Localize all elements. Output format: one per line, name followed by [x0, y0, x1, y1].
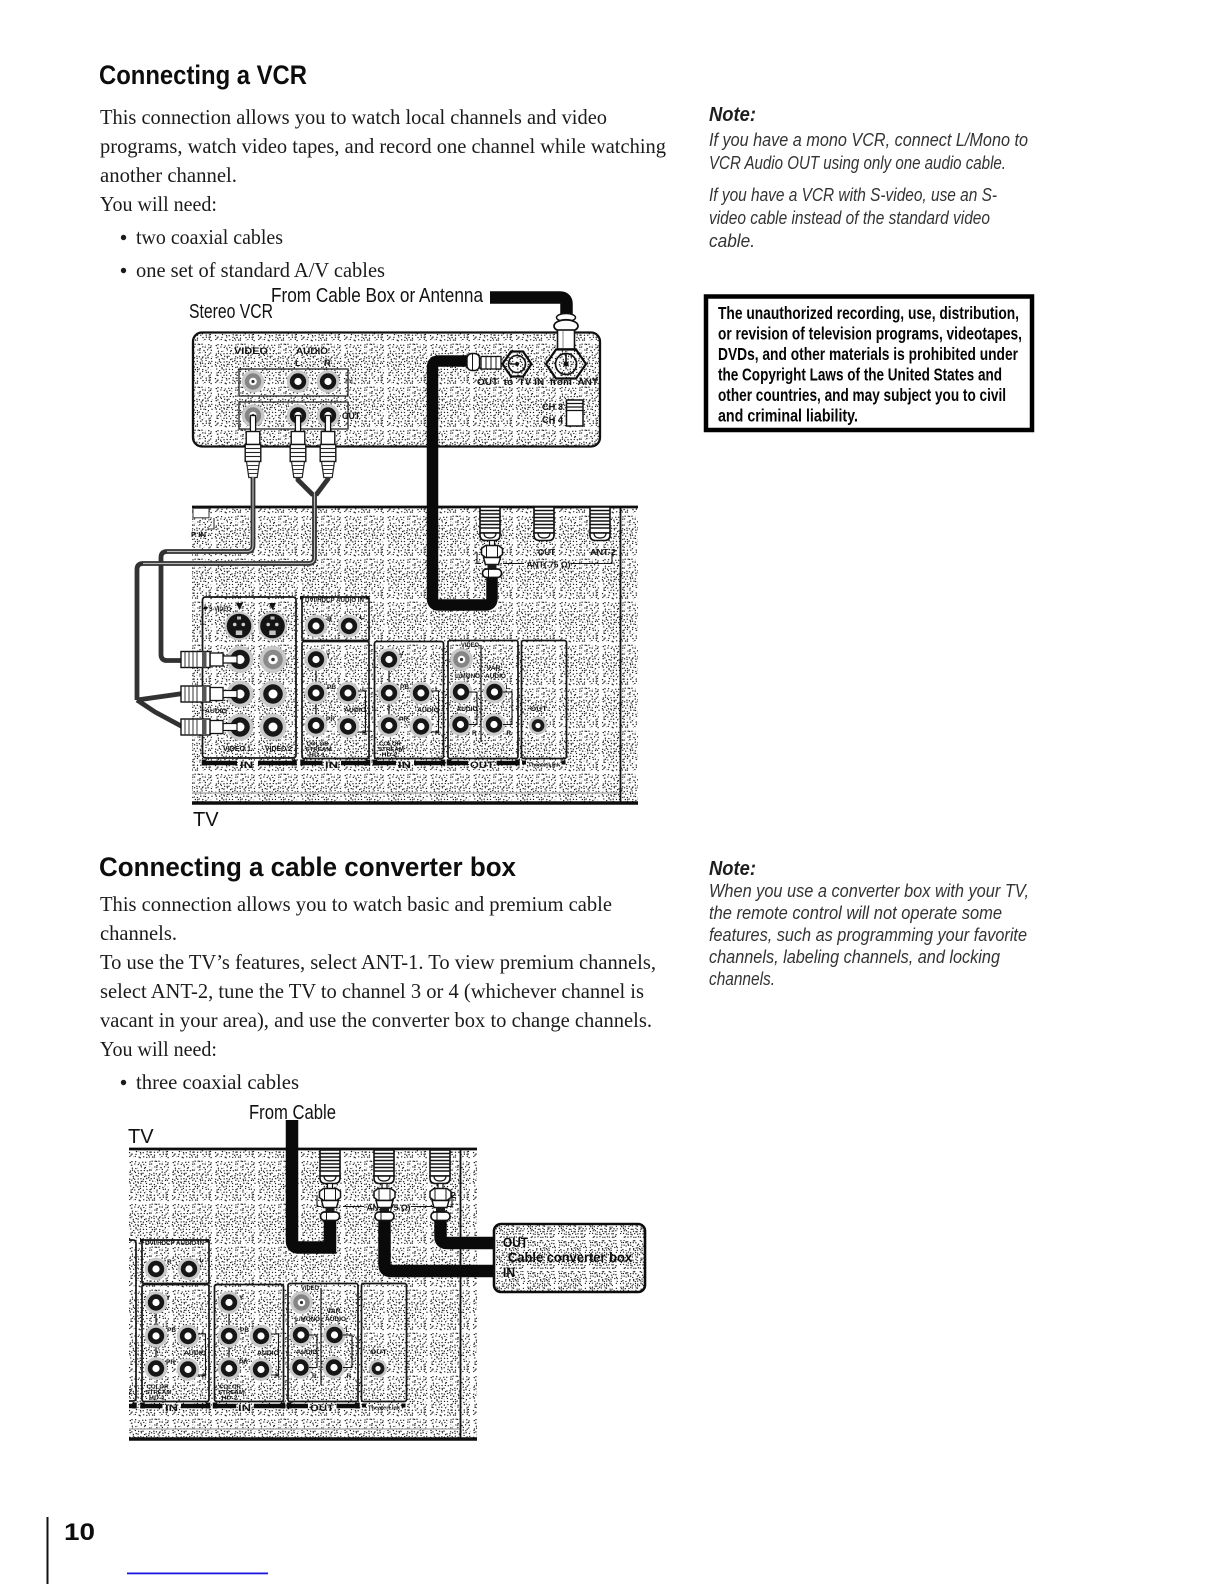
svg-text:The unauthorized recording, us: The unauthorized recording, use, distrib… — [718, 303, 1019, 323]
svg-text:When you use a converter box w: When you use a converter box with your T… — [709, 881, 1029, 901]
svg-text:Connecting a cable converter b: Connecting a cable converter box — [99, 852, 516, 882]
svg-text:OUT to TV IN from ANT: OUT to TV IN from ANT — [477, 377, 599, 387]
svg-text:channels, labeling channels, a: channels, labeling channels, and locking — [709, 947, 1000, 967]
svg-text:Note:: Note: — [709, 858, 756, 880]
svg-text:features, such as programming: features, such as programming your favor… — [709, 925, 1027, 945]
svg-text:video cable instead of the sta: video cable instead of the standard vide… — [709, 208, 990, 228]
svg-text:If you have a VCR with S-video: If you have a VCR with S-video, use an S… — [709, 185, 997, 205]
svg-text:VIDEO: VIDEO — [234, 346, 268, 356]
svg-text:Stereo VCR: Stereo VCR — [189, 301, 273, 323]
svg-text:This connection allows you to: This connection allows you to watch loca… — [100, 105, 607, 129]
svg-text:If you have a mono VCR, connec: If you have a mono VCR, connect L/Mono t… — [709, 130, 1028, 150]
svg-text:two coaxial cables: two coaxial cables — [136, 225, 283, 249]
svg-text:VCR Audio OUT using only one a: VCR Audio OUT using only one audio cable… — [709, 153, 1006, 173]
svg-text:and criminal liability.: and criminal liability. — [718, 406, 858, 426]
svg-text:AUDIO: AUDIO — [296, 346, 328, 356]
svg-text:This connection allows you to: This connection allows you to watch basi… — [100, 892, 612, 916]
svg-text:Connecting a VCR: Connecting a VCR — [99, 60, 307, 90]
svg-text:P IN: P IN — [191, 530, 206, 539]
svg-text:vacant in your area), and use: vacant in your area), and use the conver… — [100, 1008, 652, 1032]
svg-text:DVDs, and other materials is p: DVDs, and other materials is prohibited … — [718, 344, 1018, 364]
svg-text:the remote control will not op: the remote control will not operate some — [709, 903, 1002, 923]
svg-text:IN: IN — [345, 377, 353, 386]
svg-text:IN: IN — [503, 1265, 515, 1280]
svg-text:L: L — [295, 358, 301, 368]
svg-text:another channel.: another channel. — [100, 163, 237, 187]
svg-text:three coaxial cables: three coaxial cables — [136, 1070, 299, 1094]
svg-text:Cable converter box: Cable converter box — [508, 1249, 632, 1265]
svg-text:channels.: channels. — [100, 921, 177, 945]
svg-text:one set of standard A/V cables: one set of standard A/V cables — [136, 258, 385, 282]
svg-text:CH 4: CH 4 — [542, 415, 563, 425]
svg-text:channels.: channels. — [709, 969, 775, 989]
svg-text:or revision of television prog: or revision of television programs, vide… — [718, 324, 1022, 344]
svg-text:select ANT-2, tune the TV to c: select ANT-2, tune the TV to channel 3 o… — [100, 979, 644, 1003]
svg-text:You will need:: You will need: — [100, 1037, 217, 1061]
svg-text:TV: TV — [128, 1126, 154, 1148]
svg-text:OUT: OUT — [503, 1235, 529, 1250]
svg-text:R: R — [324, 358, 331, 368]
svg-text:From Cable Box or Antenna: From Cable Box or Antenna — [271, 285, 484, 307]
svg-text:the Copyright Laws of the Unit: the Copyright Laws of the United States … — [718, 365, 1002, 385]
svg-text:TV: TV — [193, 809, 219, 831]
svg-text:programs, watch video tapes, a: programs, watch video tapes, and record … — [100, 134, 666, 158]
svg-text:other countries, and may subje: other countries, and may subject you to … — [718, 385, 1006, 405]
svg-text:You will need:: You will need: — [100, 192, 217, 216]
svg-text:10: 10 — [64, 1519, 95, 1546]
svg-text:cable.: cable. — [709, 231, 755, 251]
svg-text:Note:: Note: — [709, 104, 756, 126]
svg-text:CH 3: CH 3 — [542, 402, 563, 412]
svg-text:OUT: OUT — [342, 411, 360, 421]
svg-text:To use the TV’s features, sele: To use the TV’s features, select ANT-1. … — [100, 950, 656, 974]
